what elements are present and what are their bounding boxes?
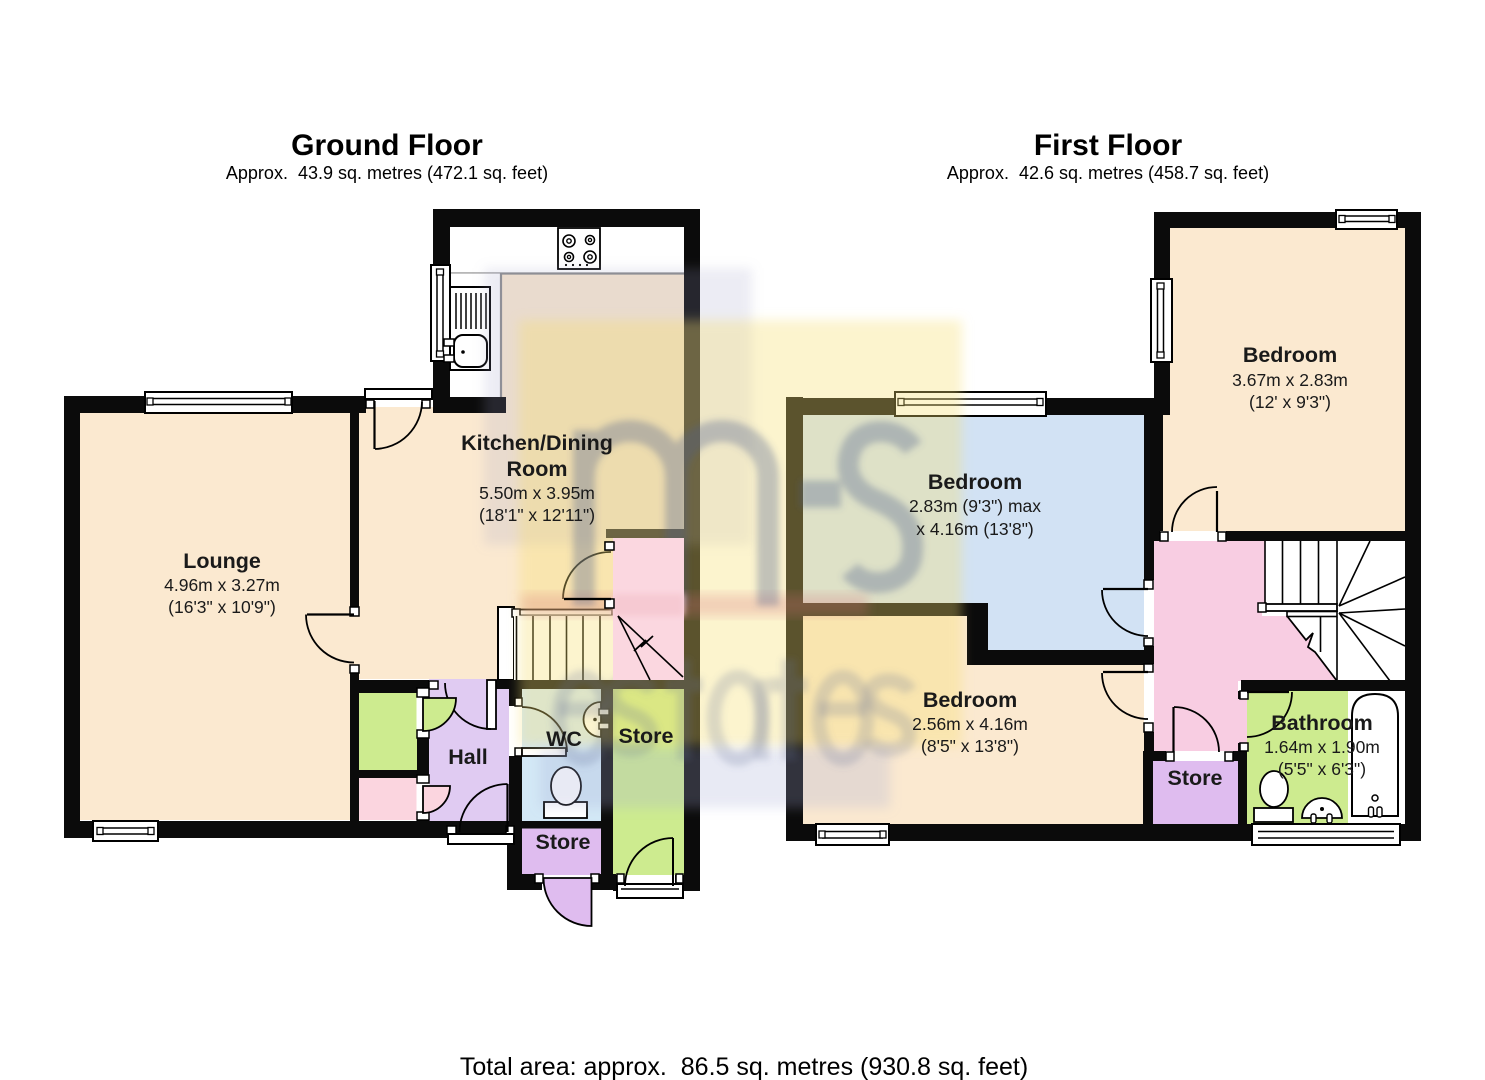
svg-text:3.67m x 2.83m: 3.67m x 2.83m (1232, 370, 1348, 390)
svg-text:Approx. 42.6 sq. metres (458.: Approx. 42.6 sq. metres (458.7 sq. feet) (947, 163, 1269, 183)
svg-text:2.83m (9'3") max: 2.83m (9'3") max (909, 496, 1041, 516)
svg-text:(18'1" x 12'11"): (18'1" x 12'11") (479, 505, 595, 525)
svg-text:Kitchen/Dining: Kitchen/Dining (461, 431, 613, 455)
svg-text:Store: Store (619, 724, 674, 748)
svg-text:WC: WC (546, 727, 582, 751)
svg-text:Bedroom: Bedroom (1243, 343, 1337, 367)
svg-text:Store: Store (1168, 766, 1223, 790)
svg-text:(12' x 9'3"): (12' x 9'3") (1249, 392, 1331, 412)
svg-text:Store: Store (536, 830, 591, 854)
svg-text:Ground Floor: Ground Floor (291, 129, 483, 162)
svg-text:Bathroom: Bathroom (1271, 711, 1373, 735)
svg-text:1.64m x 1.90m: 1.64m x 1.90m (1264, 737, 1380, 757)
svg-text:Approx. 43.9 sq. metres (472.: Approx. 43.9 sq. metres (472.1 sq. feet) (226, 163, 548, 183)
svg-text:2.56m x 4.16m: 2.56m x 4.16m (912, 714, 1028, 734)
svg-text:(8'5" x 13'8"): (8'5" x 13'8") (921, 736, 1019, 756)
svg-text:Hall: Hall (448, 745, 487, 769)
svg-text:(16'3" x 10'9"): (16'3" x 10'9") (168, 597, 276, 617)
svg-text:Bedroom: Bedroom (923, 688, 1017, 712)
svg-text:4.96m x 3.27m: 4.96m x 3.27m (164, 575, 280, 595)
svg-text:(5'5" x 6'3"): (5'5" x 6'3") (1278, 759, 1366, 779)
svg-text:Bedroom: Bedroom (928, 470, 1022, 494)
svg-text:First Floor: First Floor (1034, 129, 1183, 162)
svg-text:Total area: approx. 86.5 sq.: Total area: approx. 86.5 sq. metres (930… (460, 1053, 1028, 1080)
svg-text:x 4.16m (13'8"): x 4.16m (13'8") (916, 519, 1034, 539)
svg-text:5.50m x 3.95m: 5.50m x 3.95m (479, 483, 595, 503)
svg-text:Room: Room (507, 457, 568, 481)
svg-text:Lounge: Lounge (183, 549, 261, 573)
